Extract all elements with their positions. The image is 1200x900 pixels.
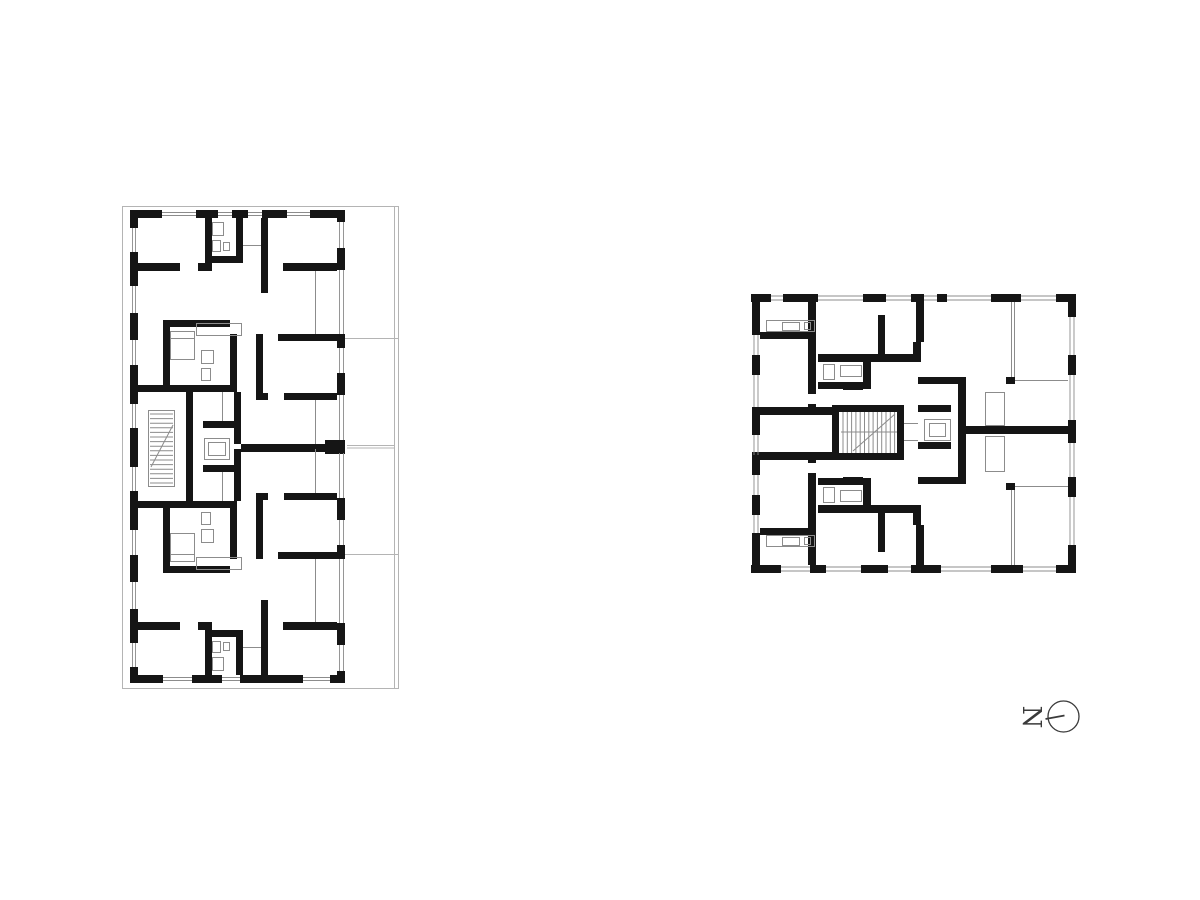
north-arrow-label: N [1016,706,1046,729]
floor-plan-drawing: N [0,0,1200,900]
drawing-sheet: N [0,0,1200,900]
sheet-background [0,0,1200,900]
